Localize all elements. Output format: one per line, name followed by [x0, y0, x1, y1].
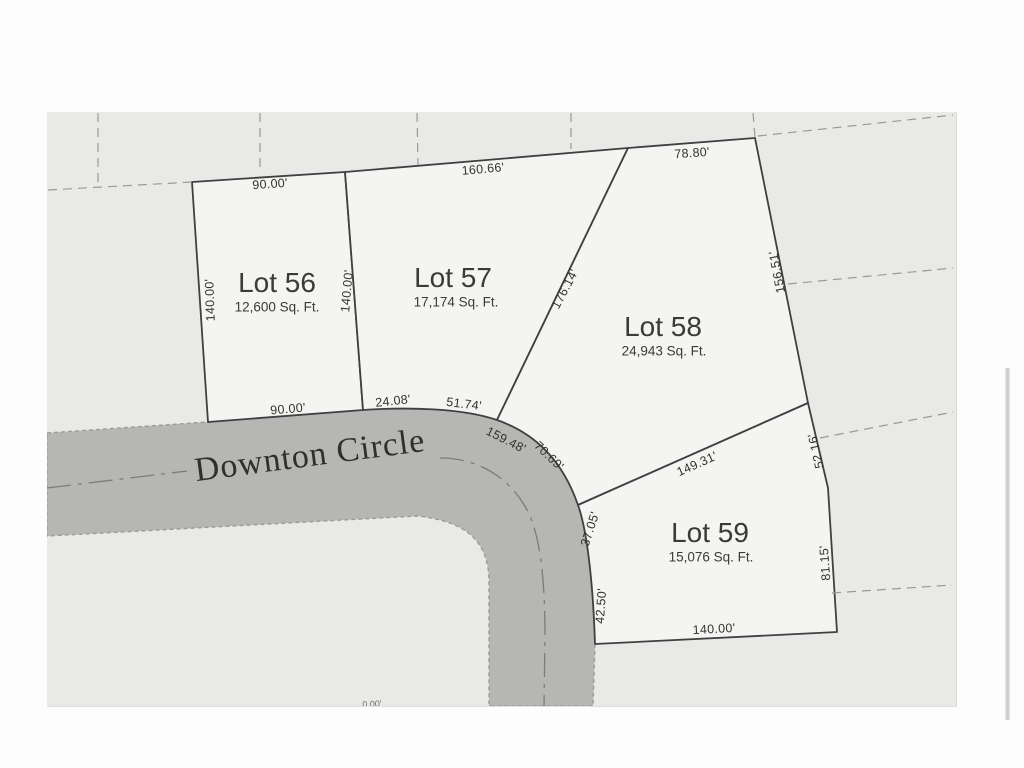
lot56-area: 12,600 Sq. Ft.	[235, 300, 320, 315]
scanned-plat-map: 90.00' 160.66' 78.80' 140.00' 140.00' 90…	[0, 0, 1024, 768]
lot59-title: Lot 59	[671, 517, 749, 549]
plat-drawing	[47, 112, 956, 706]
scanner-shadow-artifact	[1005, 368, 1010, 720]
dim-arc-lot59-lower: 42.50'	[593, 588, 609, 624]
lot58-area: 24,943 Sq. Ft.	[622, 344, 707, 359]
dim-lot56-top: 90.00'	[252, 176, 288, 192]
dim-lot59-right-lower: 81.15'	[817, 545, 833, 581]
dim-clipped-bottom: 0.00'	[362, 699, 382, 707]
lot59-area: 15,076 Sq. Ft.	[669, 550, 754, 565]
lot56-title: Lot 56	[238, 267, 316, 299]
dim-lot56-left: 140.00'	[202, 278, 217, 321]
lot57-area: 17,174 Sq. Ft.	[414, 295, 499, 310]
dim-lot59-bottom: 140.00'	[692, 621, 735, 637]
plat-page: 90.00' 160.66' 78.80' 140.00' 140.00' 90…	[47, 112, 957, 707]
lot58-title: Lot 58	[624, 311, 702, 343]
dim-lot58-top: 78.80'	[674, 145, 710, 161]
lot57-title: Lot 57	[414, 262, 492, 294]
